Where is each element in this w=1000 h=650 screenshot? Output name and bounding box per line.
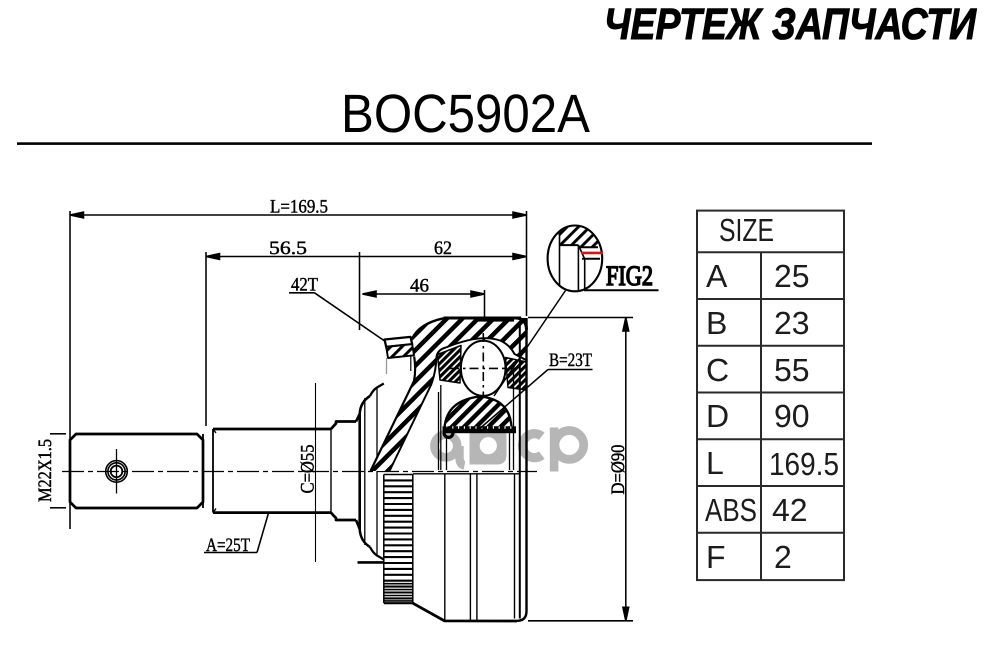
svg-text:42: 42: [772, 492, 808, 528]
svg-text:F: F: [706, 539, 726, 575]
svg-text:23: 23: [774, 305, 810, 341]
svg-text:BOC5902A: BOC5902A: [341, 84, 590, 144]
svg-text:B: B: [706, 305, 727, 341]
svg-text:A: A: [706, 258, 728, 294]
svg-text:56.5: 56.5: [269, 238, 307, 259]
svg-text:ABS: ABS: [705, 492, 757, 528]
svg-text:SIZE: SIZE: [719, 212, 774, 248]
svg-text:L=169.5: L=169.5: [270, 197, 328, 218]
svg-text:55: 55: [774, 352, 810, 388]
svg-text:2: 2: [774, 539, 792, 575]
svg-text:D: D: [706, 398, 729, 434]
svg-text:62: 62: [434, 238, 452, 259]
svg-text:25: 25: [774, 258, 810, 294]
svg-text:C: C: [706, 352, 729, 388]
svg-text:169.5: 169.5: [769, 446, 839, 482]
svg-text:M22X1.5: M22X1.5: [35, 439, 56, 502]
svg-text:L: L: [706, 445, 724, 481]
svg-text:B=23T: B=23T: [549, 350, 592, 371]
svg-text:D=Ø90: D=Ø90: [608, 445, 629, 495]
svg-text:FIG2: FIG2: [606, 261, 653, 292]
svg-text:ЧЕРТЕЖ ЗАПЧАСТИ: ЧЕРТЕЖ ЗАПЧАСТИ: [604, 0, 977, 49]
svg-text:90: 90: [774, 398, 810, 434]
svg-text:46: 46: [410, 276, 429, 297]
